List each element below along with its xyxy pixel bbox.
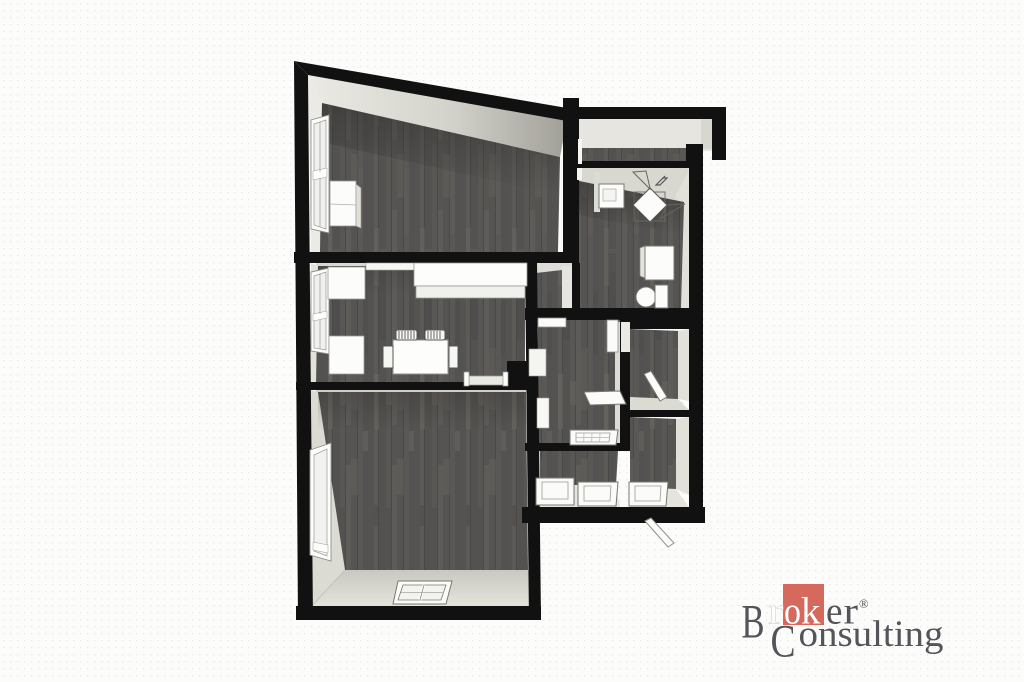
svg-text:onsulting: onsulting: [799, 614, 944, 655]
svg-text:®: ®: [859, 597, 869, 611]
svg-text:C: C: [771, 616, 796, 668]
svg-text:B: B: [742, 596, 765, 649]
